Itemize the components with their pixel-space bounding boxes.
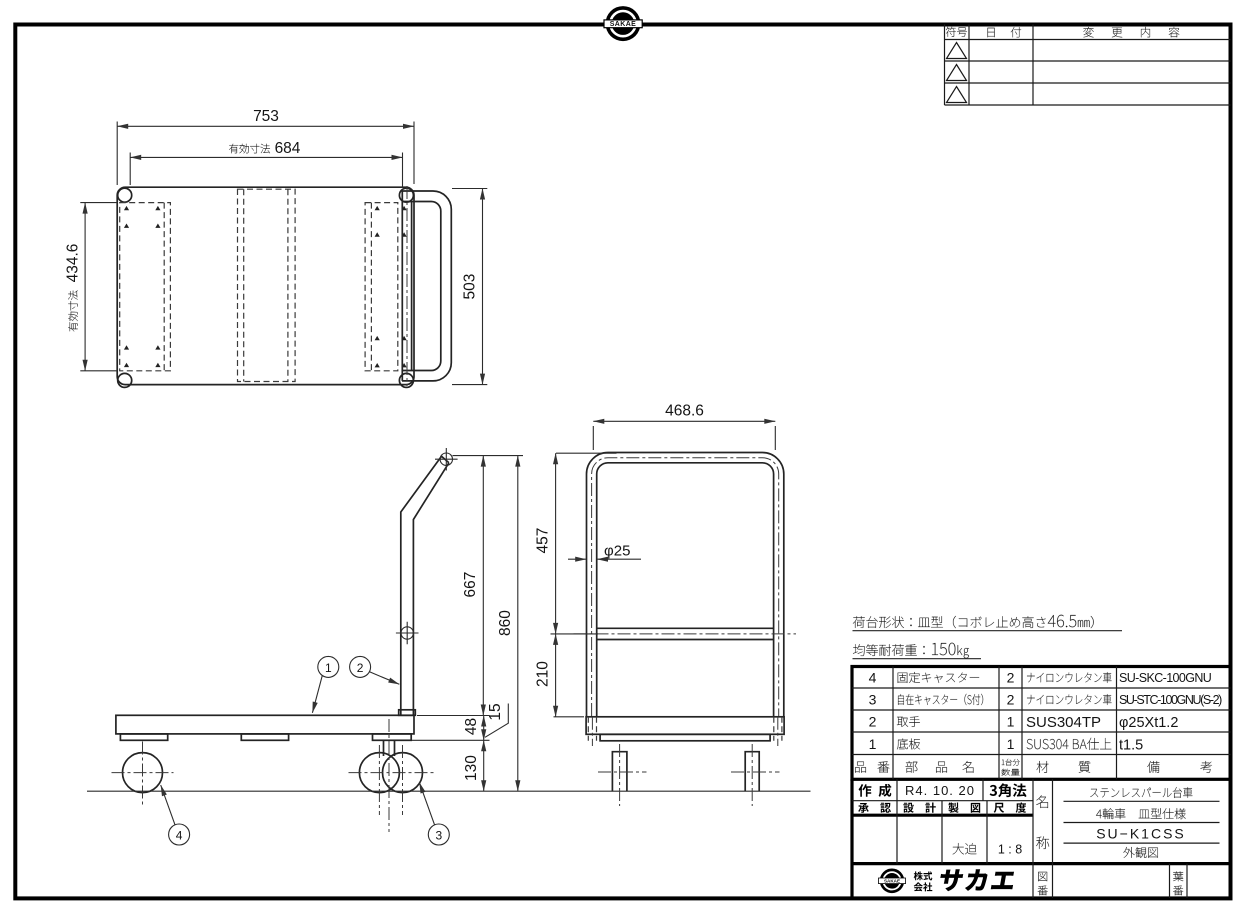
svg-text:SU−K1CSS: SU−K1CSS [1096,826,1186,842]
svg-text:2: 2 [869,713,877,729]
svg-text:SAKAE: SAKAE [884,879,900,884]
svg-text:φ25Xt1.2: φ25Xt1.2 [1119,715,1178,731]
svg-text:2: 2 [1007,691,1015,707]
svg-text:667: 667 [462,572,479,598]
svg-text:15: 15 [487,703,504,720]
svg-text:SAKAE: SAKAE [610,21,637,28]
svg-text:457: 457 [535,528,552,554]
svg-text:2: 2 [1007,669,1015,685]
svg-text:t1.5: t1.5 [1119,738,1143,754]
svg-text:130: 130 [463,755,480,781]
svg-text:SU-SKC-100GNU: SU-SKC-100GNU [1119,671,1212,685]
svg-text:503: 503 [462,274,479,300]
svg-text:3: 3 [869,691,877,707]
svg-text:1: 1 [1007,713,1015,729]
svg-text:753: 753 [253,108,279,125]
svg-text:φ25: φ25 [604,543,630,560]
svg-text:684: 684 [275,140,301,157]
svg-text:4: 4 [869,669,877,685]
svg-text:1: 1 [1007,736,1015,752]
svg-text:4: 4 [176,828,183,842]
svg-text:210: 210 [535,661,552,687]
svg-text:2: 2 [357,661,364,675]
svg-text:860: 860 [497,610,514,636]
svg-text:1: 1 [869,736,877,752]
svg-text:434.6: 434.6 [65,244,82,283]
svg-text:R4. 10. 20: R4. 10. 20 [905,783,975,798]
svg-text:468.6: 468.6 [665,403,704,420]
svg-text:SU-STC-100GNU(S-2): SU-STC-100GNU(S-2) [1119,693,1222,707]
svg-text:1 : 8: 1 : 8 [998,843,1022,857]
svg-text:1: 1 [325,661,332,675]
svg-text:3: 3 [435,828,442,842]
svg-text:SUS304TP: SUS304TP [1026,714,1101,731]
svg-text:48: 48 [463,718,480,735]
